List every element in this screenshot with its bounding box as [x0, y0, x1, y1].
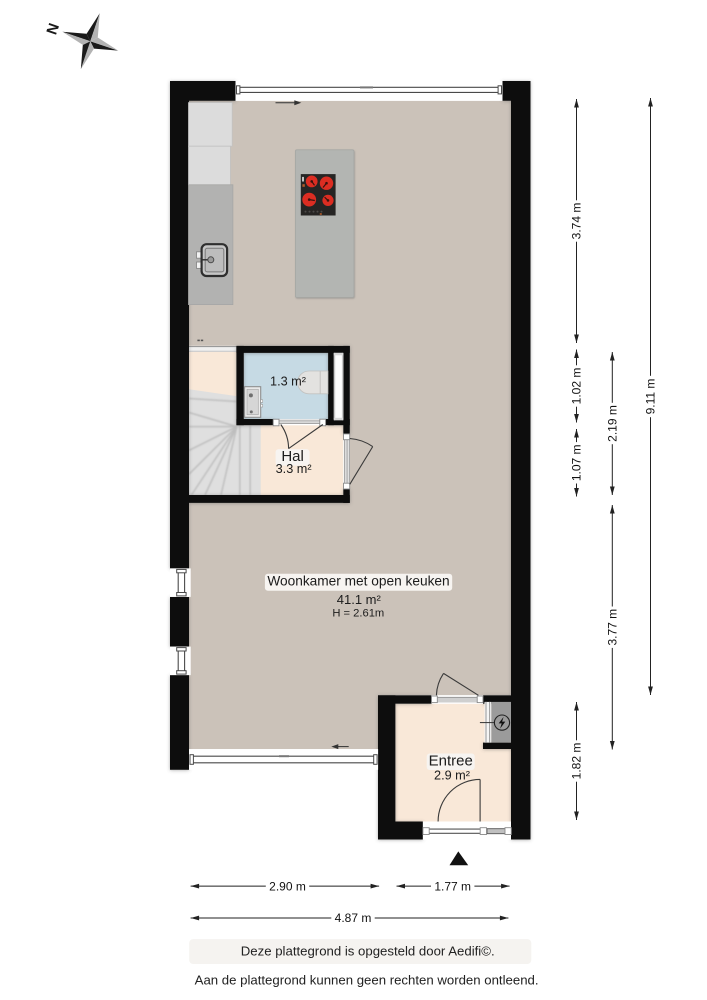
svg-text:1.07 m: 1.07 m — [570, 444, 584, 481]
svg-text:Aan de plattegrond kunnen geen: Aan de plattegrond kunnen geen rechten w… — [195, 972, 539, 987]
svg-text:2.19 m: 2.19 m — [606, 405, 620, 442]
svg-text:2.9 m²: 2.9 m² — [434, 769, 470, 783]
svg-text:1.77 m: 1.77 m — [434, 879, 471, 893]
svg-text:3.74 m: 3.74 m — [570, 203, 584, 240]
svg-text:41.1 m²: 41.1 m² — [337, 592, 382, 607]
svg-text:3.3 m²: 3.3 m² — [276, 462, 312, 476]
svg-text:H = 2.61m: H = 2.61m — [332, 608, 384, 620]
svg-text:3.77 m: 3.77 m — [606, 609, 620, 646]
svg-text:Deze plattegrond is opgesteld: Deze plattegrond is opgesteld door Aedif… — [241, 943, 495, 958]
svg-text:Woonkamer met open keuken: Woonkamer met open keuken — [267, 574, 449, 589]
svg-text:1.82 m: 1.82 m — [570, 743, 584, 780]
svg-text:1.02 m: 1.02 m — [570, 368, 584, 405]
svg-text:Entree: Entree — [429, 753, 473, 770]
svg-text:N: N — [43, 21, 63, 37]
svg-text:4.87 m: 4.87 m — [335, 911, 372, 925]
svg-text:2.90 m: 2.90 m — [269, 879, 306, 893]
svg-text:9.11 m: 9.11 m — [644, 379, 658, 415]
svg-text:1.3 m²: 1.3 m² — [270, 374, 306, 388]
